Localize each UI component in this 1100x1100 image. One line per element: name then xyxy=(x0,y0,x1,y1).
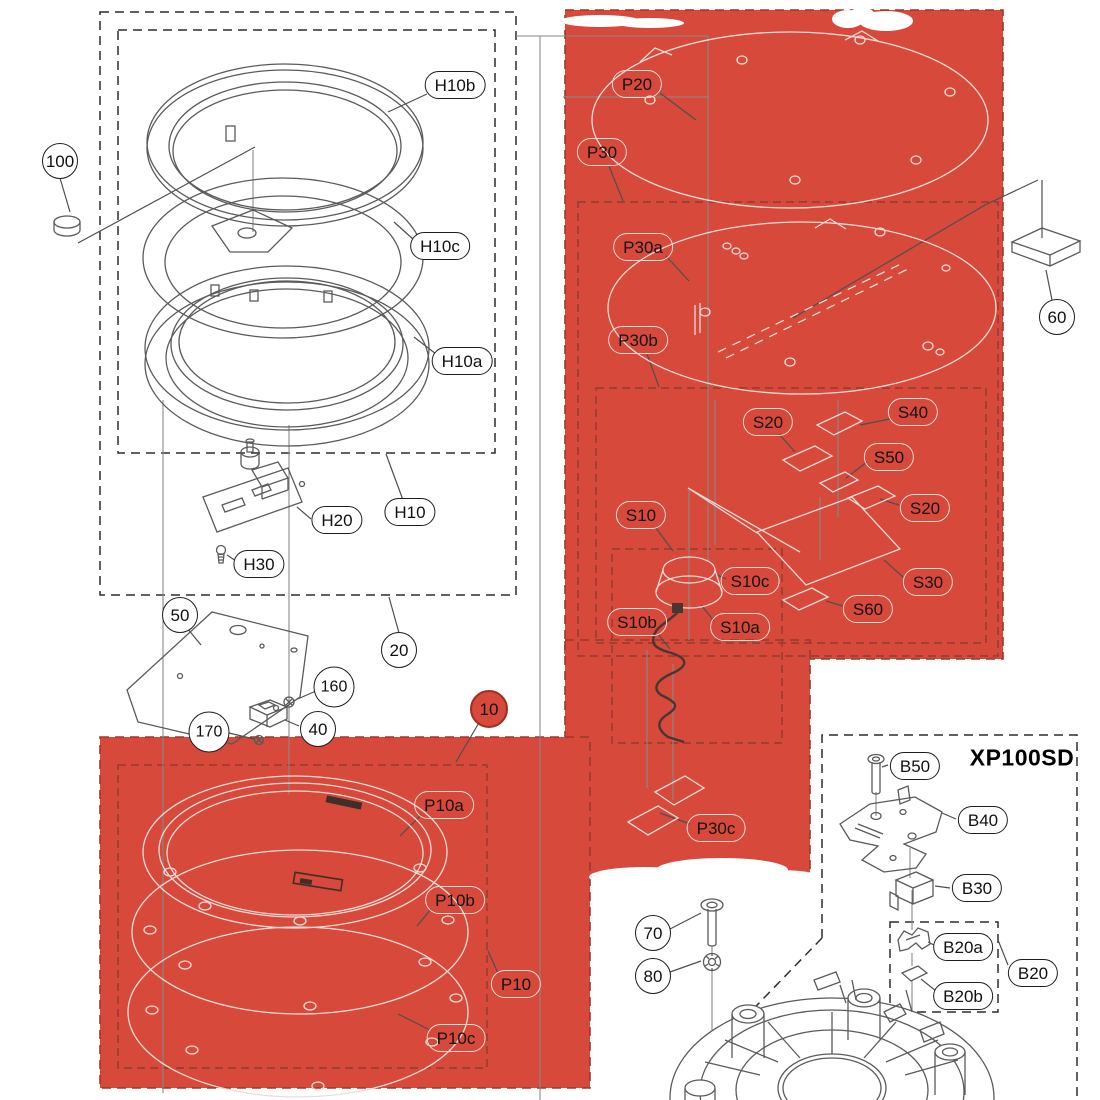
callout-s20-left[interactable]: S20 xyxy=(743,408,793,436)
callout-s20-right[interactable]: S20 xyxy=(900,494,950,522)
callout-b40[interactable]: B40 xyxy=(958,806,1008,834)
callout-50[interactable]: 50 xyxy=(162,597,198,633)
callout-p30[interactable]: P30 xyxy=(577,138,627,166)
callout-p20[interactable]: P20 xyxy=(612,70,662,98)
callout-p30a[interactable]: P30a xyxy=(613,233,673,261)
callout-p10c[interactable]: P10c xyxy=(427,1024,486,1052)
callout-b50[interactable]: B50 xyxy=(890,752,940,780)
callout-b20a[interactable]: B20a xyxy=(933,933,993,961)
callout-20[interactable]: 20 xyxy=(381,632,417,668)
callout-h10b[interactable]: H10b xyxy=(425,71,486,99)
part-screw-h30 xyxy=(217,546,226,564)
parts-diagram-canvas: 100 H10b H10c H10a H20 H10 H30 50 20 160… xyxy=(0,0,1100,1100)
highlight-region-panel-sensor-group[interactable] xyxy=(565,10,1003,880)
part-pin-100 xyxy=(54,216,80,236)
part-center-mount xyxy=(212,210,292,252)
callout-h10c[interactable]: H10c xyxy=(410,232,470,260)
callout-p10b[interactable]: P10b xyxy=(425,886,485,914)
callout-40[interactable]: 40 xyxy=(300,711,336,747)
part-pad-b20b xyxy=(902,966,927,981)
callout-h20[interactable]: H20 xyxy=(311,506,362,534)
part-screw-70 xyxy=(701,899,723,946)
callout-h10a[interactable]: H10a xyxy=(432,347,493,375)
part-bracket-b40 xyxy=(840,786,942,872)
callout-s10[interactable]: S10 xyxy=(616,501,666,529)
callout-10-selected[interactable]: 10 xyxy=(470,690,508,728)
callout-s10a[interactable]: S10a xyxy=(710,613,770,641)
callout-70[interactable]: 70 xyxy=(635,915,671,951)
group-box-20 xyxy=(100,12,516,595)
callout-p10[interactable]: P10 xyxy=(491,970,541,998)
callout-p30c[interactable]: P30c xyxy=(687,814,746,842)
callout-h30[interactable]: H30 xyxy=(233,550,284,578)
callout-h10[interactable]: H10 xyxy=(384,498,435,526)
callout-100[interactable]: 100 xyxy=(42,143,78,179)
callout-s40[interactable]: S40 xyxy=(888,398,938,426)
part-plate-60 xyxy=(1012,228,1080,266)
callout-b20b[interactable]: B20b xyxy=(933,982,993,1010)
callout-170[interactable]: 170 xyxy=(189,712,230,753)
model-title: XP100SD xyxy=(970,745,1075,772)
callout-s10c[interactable]: S10c xyxy=(721,567,780,595)
callout-b30[interactable]: B30 xyxy=(952,874,1002,902)
callout-160[interactable]: 160 xyxy=(314,667,355,708)
callout-s50[interactable]: S50 xyxy=(864,443,914,471)
callout-b20[interactable]: B20 xyxy=(1008,959,1058,987)
callout-p30b[interactable]: P30b xyxy=(608,326,668,354)
diagram-line-art xyxy=(0,0,1100,1100)
callout-p10a[interactable]: P10a xyxy=(414,791,474,819)
callout-80[interactable]: 80 xyxy=(635,958,671,994)
part-tnut-40 xyxy=(250,700,287,727)
callout-s10b[interactable]: S10b xyxy=(607,608,667,636)
part-screw-b50 xyxy=(868,755,884,795)
callout-s30[interactable]: S30 xyxy=(903,568,953,596)
callout-60[interactable]: 60 xyxy=(1039,299,1075,335)
part-clip-b20a xyxy=(898,928,930,951)
part-washer-80 xyxy=(704,953,721,971)
callout-s60[interactable]: S60 xyxy=(843,595,893,623)
